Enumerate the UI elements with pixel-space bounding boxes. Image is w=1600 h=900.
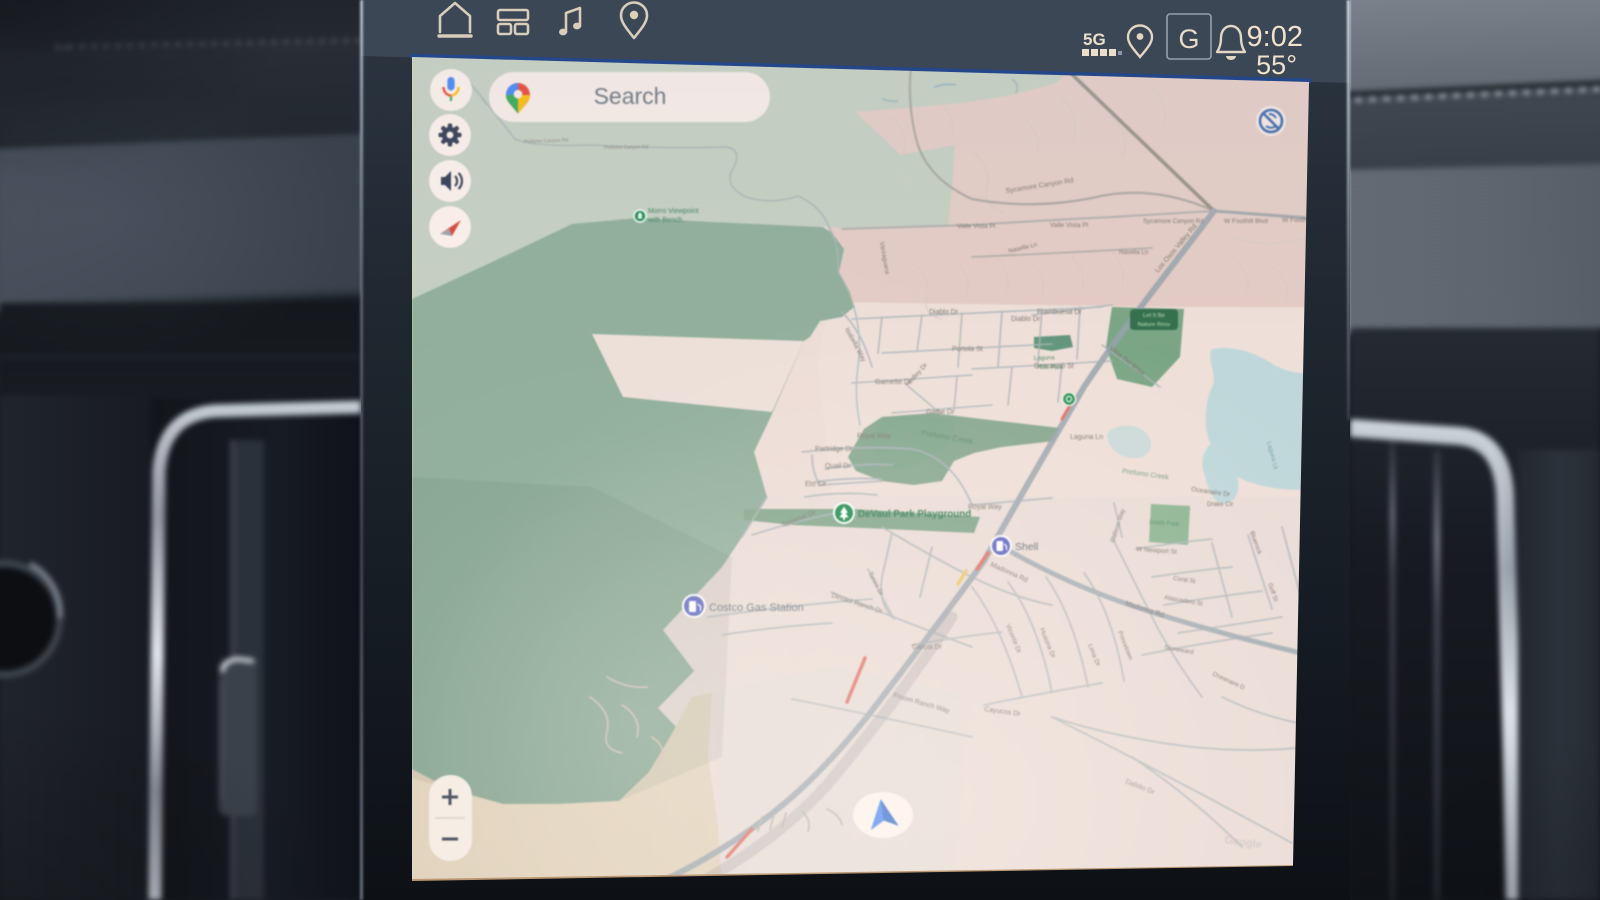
svg-text:55°: 55° bbox=[1256, 50, 1297, 80]
svg-text:G: G bbox=[1178, 24, 1199, 54]
svg-text:5G: 5G bbox=[1083, 30, 1106, 49]
svg-text:9:02: 9:02 bbox=[1247, 21, 1303, 53]
